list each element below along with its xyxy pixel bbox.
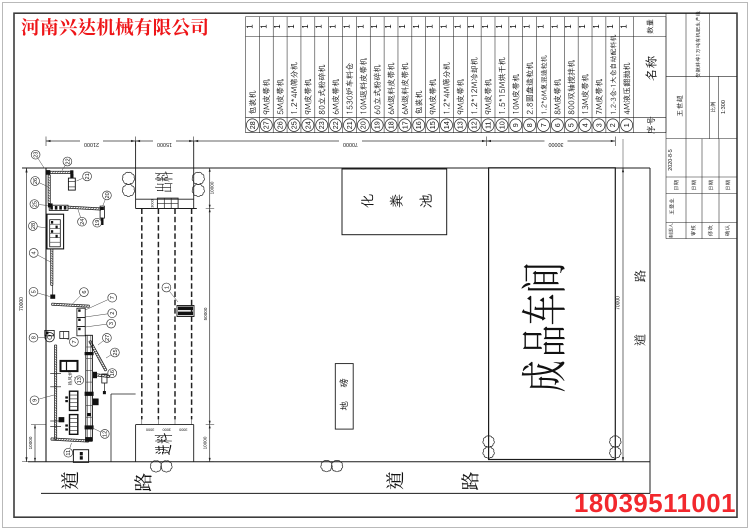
svg-text:70000: 70000 [343, 141, 358, 147]
svg-text:1: 1 [384, 24, 393, 29]
svg-text:1: 1 [329, 24, 338, 29]
svg-text:13: 13 [456, 121, 465, 129]
svg-text:22: 22 [65, 158, 71, 164]
svg-text:16: 16 [414, 121, 423, 129]
svg-text:1: 1 [467, 24, 476, 29]
svg-text:15000: 15000 [157, 141, 172, 147]
svg-text:26: 26 [33, 178, 39, 184]
svg-text:1: 1 [495, 24, 504, 29]
svg-text:19: 19 [373, 121, 382, 129]
svg-text:1: 1 [620, 24, 629, 29]
svg-text:5: 5 [567, 123, 576, 127]
svg-text:50000: 50000 [203, 307, 208, 320]
svg-text:21000: 21000 [84, 141, 99, 147]
svg-text:7: 7 [539, 123, 548, 127]
svg-text:1: 1 [370, 24, 379, 29]
svg-text:23: 23 [317, 121, 326, 129]
svg-text:1: 1 [301, 24, 310, 29]
svg-text:25: 25 [113, 349, 119, 355]
svg-text:7: 7 [72, 340, 78, 343]
svg-text:3000: 3000 [162, 428, 170, 432]
svg-text:1: 1 [550, 24, 559, 29]
svg-text:26: 26 [276, 121, 285, 129]
svg-text:23: 23 [34, 152, 40, 158]
svg-text:1: 1 [439, 24, 448, 29]
svg-text:6: 6 [82, 291, 88, 294]
svg-text:1: 1 [287, 24, 296, 29]
svg-text:1: 1 [412, 24, 421, 29]
svg-text:7: 7 [110, 296, 116, 299]
svg-text:15: 15 [428, 121, 437, 129]
svg-text:1:300: 1:300 [721, 100, 727, 114]
svg-text:3000: 3000 [179, 428, 187, 432]
svg-text:27: 27 [105, 335, 111, 341]
svg-text:1: 1 [164, 286, 170, 289]
svg-text:19: 19 [95, 220, 101, 226]
svg-text:18039511001: 18039511001 [574, 490, 736, 518]
svg-text:6: 6 [553, 123, 562, 127]
svg-text:1: 1 [564, 24, 573, 29]
svg-text:1: 1 [481, 24, 490, 29]
svg-text:1: 1 [606, 24, 615, 29]
svg-text:10000: 10000 [210, 181, 215, 194]
svg-text:5: 5 [31, 290, 37, 293]
svg-text:16: 16 [110, 370, 116, 376]
svg-text:1: 1 [356, 24, 365, 29]
svg-text:17: 17 [400, 121, 409, 129]
svg-text:25: 25 [32, 201, 38, 207]
svg-text:70000: 70000 [615, 296, 621, 310]
svg-text:18: 18 [386, 121, 395, 129]
svg-text:30000: 30000 [549, 141, 564, 147]
svg-text:1: 1 [453, 24, 462, 29]
svg-text:2020-8-5: 2020-8-5 [668, 149, 674, 171]
svg-text:3000: 3000 [151, 199, 155, 207]
svg-text:8: 8 [31, 336, 37, 339]
svg-text:1: 1 [509, 24, 518, 29]
svg-text:1: 1 [523, 24, 532, 29]
svg-text:1: 1 [578, 24, 587, 29]
svg-text:10000: 10000 [202, 436, 207, 449]
svg-text:12: 12 [470, 121, 479, 129]
svg-text:9: 9 [511, 123, 520, 127]
svg-text:11: 11 [483, 121, 492, 128]
svg-text:28: 28 [31, 223, 37, 229]
svg-text:4: 4 [32, 251, 38, 254]
svg-text:3: 3 [594, 123, 603, 127]
svg-text:1: 1 [398, 24, 407, 29]
svg-text:1: 1 [259, 24, 268, 29]
svg-text:4: 4 [580, 123, 589, 127]
svg-text:21: 21 [345, 121, 354, 129]
svg-text:20: 20 [359, 121, 368, 129]
svg-text:1: 1 [622, 123, 631, 127]
svg-text:1: 1 [426, 24, 435, 29]
svg-text:12: 12 [103, 431, 109, 437]
svg-text:10000: 10000 [28, 436, 33, 449]
svg-text:13: 13 [77, 377, 83, 383]
svg-text:1: 1 [342, 24, 351, 29]
svg-text:9: 9 [32, 399, 38, 402]
svg-text:8: 8 [525, 123, 534, 127]
svg-text:11: 11 [66, 450, 72, 456]
svg-text:21: 21 [85, 173, 91, 179]
svg-text:25: 25 [289, 121, 298, 129]
svg-text:3000: 3000 [146, 428, 154, 432]
svg-text:2: 2 [608, 123, 617, 127]
svg-text:1: 1 [592, 24, 601, 29]
svg-text:2: 2 [110, 312, 116, 315]
svg-text:27: 27 [262, 121, 271, 129]
svg-text:20: 20 [105, 192, 111, 198]
svg-text:22: 22 [331, 121, 340, 129]
svg-text:14: 14 [442, 121, 451, 129]
svg-text:70000: 70000 [19, 297, 25, 311]
svg-text:1: 1 [315, 24, 324, 29]
svg-text:10: 10 [497, 121, 506, 129]
svg-text:24: 24 [303, 121, 312, 129]
svg-text:1: 1 [537, 24, 546, 29]
svg-text:24: 24 [80, 219, 86, 225]
svg-text:3: 3 [109, 322, 115, 325]
svg-text:1: 1 [245, 24, 254, 29]
svg-text:1: 1 [273, 24, 282, 29]
svg-text:28: 28 [248, 121, 257, 129]
